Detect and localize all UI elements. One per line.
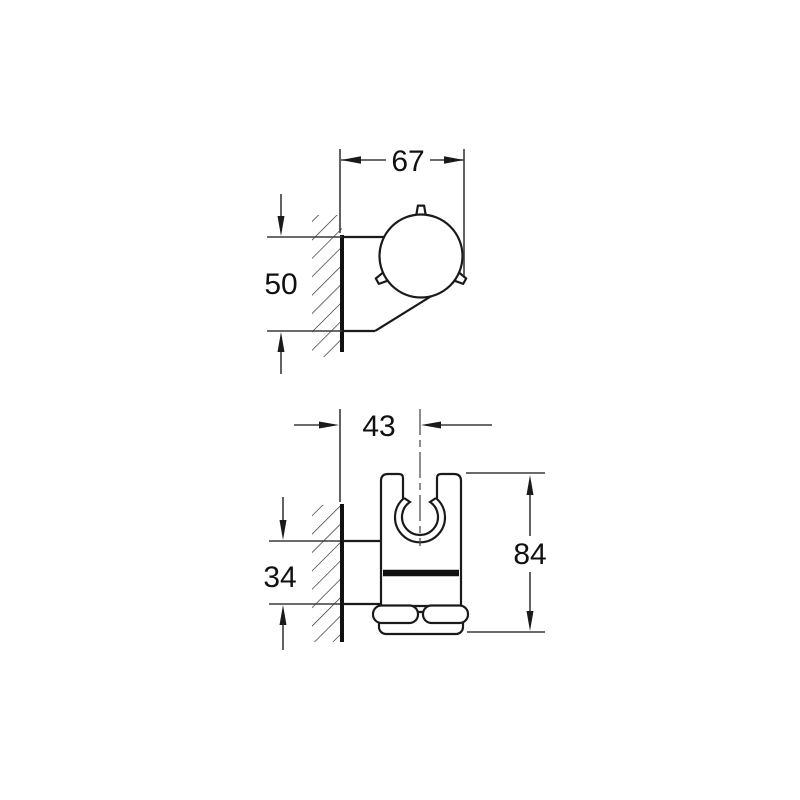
dimension-label-height: 50 <box>264 268 297 301</box>
dimension-label-block-height: 34 <box>263 561 296 594</box>
bottom-cap-right-segment <box>423 606 468 624</box>
dimension-label-depth: 67 <box>391 145 424 178</box>
knob-circle <box>380 215 463 298</box>
arrowhead-down <box>527 611 534 631</box>
bottom-cap-left-segment <box>373 606 418 624</box>
wall-hatching <box>312 505 342 642</box>
arrowhead-up <box>527 475 534 495</box>
arrowhead-left <box>421 422 441 429</box>
arrowhead-right <box>444 156 464 164</box>
arrowhead-down <box>278 216 285 236</box>
arrowhead-down <box>280 520 287 540</box>
side-view: 67 50 <box>264 145 466 374</box>
technical-drawing-page: 67 50 <box>0 0 800 800</box>
dimension-overall-height-84: 84 <box>466 473 547 632</box>
holder-body-outline <box>381 474 461 606</box>
arrowhead-up <box>280 605 287 625</box>
front-view: 43 34 84 <box>263 409 546 650</box>
dimension-label-offset: 43 <box>362 410 395 443</box>
arrowhead-up <box>278 332 285 352</box>
arrowhead-right <box>319 422 339 429</box>
arrowhead-left <box>341 156 361 164</box>
shower-holder-dimension-drawing: 67 50 <box>0 0 800 800</box>
dimension-label-overall-height: 84 <box>513 538 546 571</box>
